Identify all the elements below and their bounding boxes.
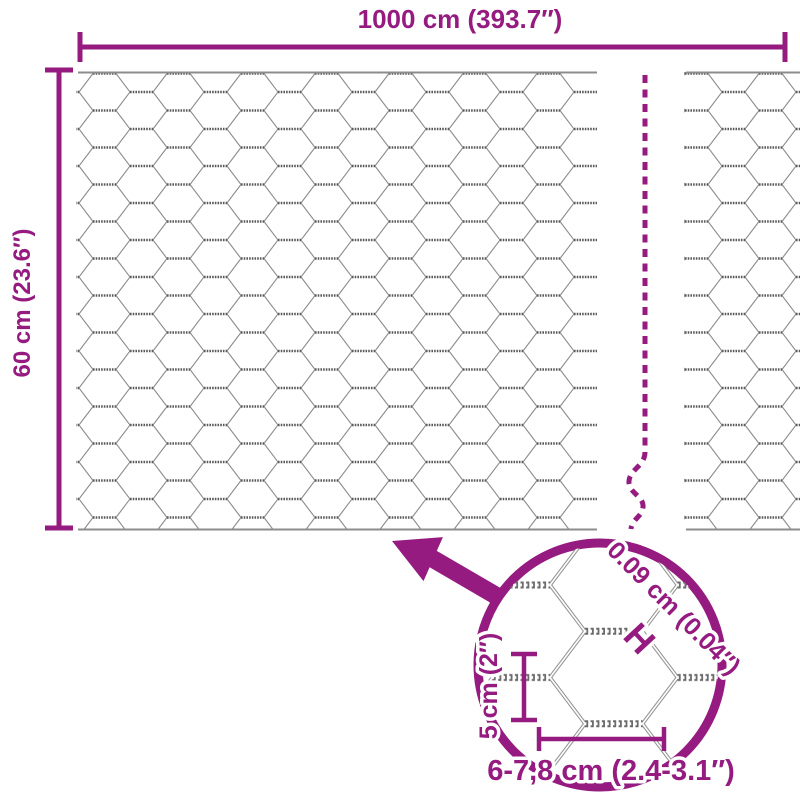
width-dimension-label: 1000 cm (393.7″) <box>358 4 563 34</box>
width-dimension: 1000 cm (393.7″) <box>80 4 785 62</box>
mesh-panel-main <box>76 72 597 530</box>
diagram-canvas: 1000 cm (393.7″) 60 cm (23.6″) 0.09 cm (… <box>0 0 800 800</box>
length-break-line <box>629 75 645 529</box>
mesh-panel-continuation <box>684 72 800 530</box>
mesh-width-dimension-label: 6-7,8 cm (2.4-3.1″) <box>487 755 735 787</box>
magnifier-arrow-icon <box>392 537 504 606</box>
magnifier-circle: 0.09 cm (0.04″) H 5 cm (2″) 6-7,8 cm (2.… <box>475 536 746 787</box>
mesh-height-dimension-label: 5 cm (2″) <box>475 633 503 739</box>
height-dimension: 60 cm (23.6″) <box>9 70 73 528</box>
product-dimension-diagram: 1000 cm (393.7″) 60 cm (23.6″) 0.09 cm (… <box>0 0 800 800</box>
mesh-panel-main-netting <box>76 72 597 530</box>
mesh-panel-continuation-netting <box>684 72 800 530</box>
height-dimension-label: 60 cm (23.6″) <box>9 229 36 378</box>
